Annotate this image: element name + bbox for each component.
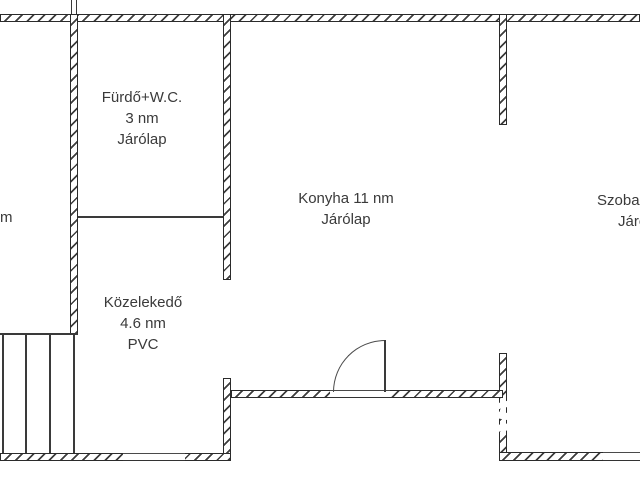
room-name: Közelekedő	[104, 292, 182, 313]
stair-tread-line	[25, 334, 27, 453]
wall-stub-above-top	[71, 0, 77, 15]
door-swing-arc	[333, 340, 385, 392]
room-floor: PVC	[104, 334, 182, 355]
floor-plan: Fürdő+W.C. 3 nm Járólap Konyha 11 nm Jár…	[0, 0, 640, 480]
room-area: 4.6 nm	[104, 313, 182, 334]
wall-bottom-left-exterior	[0, 453, 231, 461]
wall-left-vertical	[70, 14, 78, 334]
room-label-left-partial: m	[0, 207, 13, 228]
wall-kitchen-room-divider-top	[499, 14, 507, 125]
partition-bathroom-hallway	[78, 216, 223, 218]
stair-top-line	[0, 333, 78, 335]
door-leaf	[384, 340, 386, 392]
room-label-kitchen: Konyha 11 nm Járólap	[298, 188, 394, 230]
stair-tread-line	[2, 334, 4, 453]
window-bottom-right	[603, 452, 640, 461]
wall-hall-right-lower	[223, 378, 231, 461]
stair-tread-line	[73, 334, 75, 453]
room-label-bathroom: Fürdő+W.C. 3 nm Járólap	[102, 87, 182, 150]
room-label-room-right-name: Szoba	[597, 190, 640, 211]
room-name-area: Konyha 11 nm	[298, 188, 394, 209]
wall-bathroom-right-upper	[223, 14, 231, 280]
room-area: 3 nm	[102, 108, 182, 129]
watermark-stroke	[494, 411, 510, 420]
room-label-hallway: Közelekedő 4.6 nm PVC	[104, 292, 182, 355]
window-bottom-left	[123, 453, 185, 461]
room-floor: Járólap	[298, 209, 394, 230]
wall-top-exterior	[0, 14, 640, 22]
room-label-room-right-floor: Járólap	[618, 211, 640, 232]
stair-tread-line	[49, 334, 51, 453]
watermark-stroke	[496, 423, 512, 432]
room-name: Fürdő+W.C.	[102, 87, 182, 108]
room-floor: Járólap	[102, 129, 182, 150]
